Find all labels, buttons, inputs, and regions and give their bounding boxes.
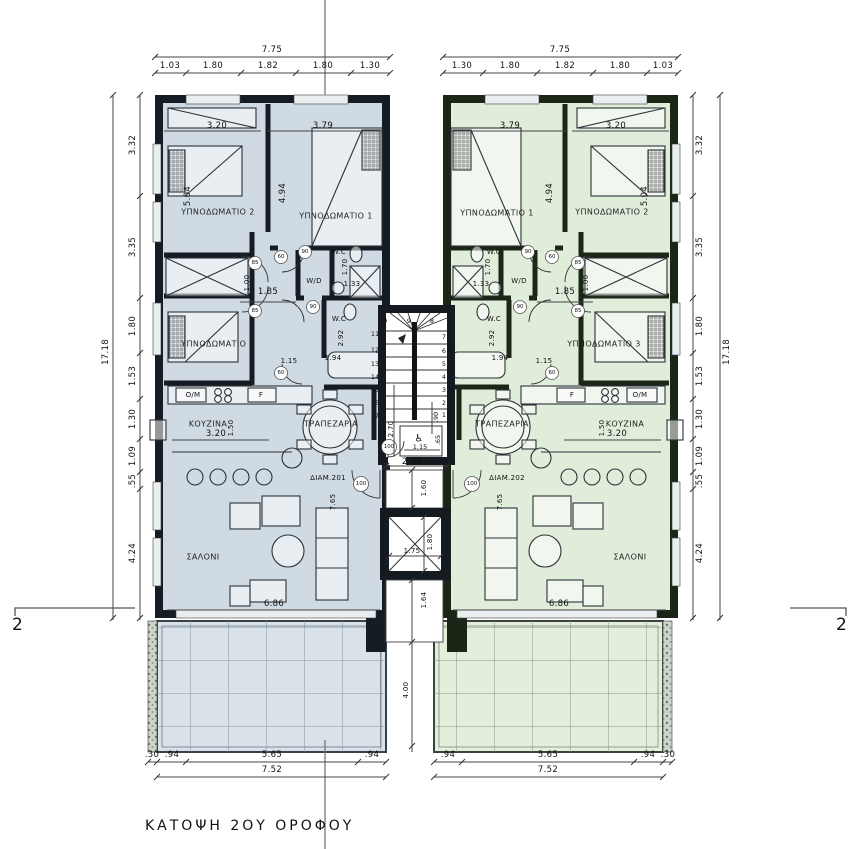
stair-number: 14 bbox=[371, 373, 379, 381]
dim-label: 1.82 bbox=[555, 61, 575, 71]
dim-label: 1.03 bbox=[653, 61, 673, 71]
dim-label: 4.00 bbox=[402, 682, 410, 699]
wall-stub-right bbox=[447, 618, 467, 652]
drawing-title: ΚΑΤΟΨΗ 2ΟΥ ΟΡΟΦΟΥ bbox=[145, 818, 354, 834]
dim-label: 2.92 bbox=[337, 330, 345, 347]
wheelchair-icon: ♿ bbox=[414, 434, 423, 445]
dim-label: 1.53 bbox=[695, 366, 705, 386]
stair-number: 11 bbox=[371, 330, 379, 338]
stair-number: 7 bbox=[442, 333, 446, 341]
room-label-wd: W/D bbox=[306, 277, 322, 285]
dim-label: .94 bbox=[641, 750, 655, 760]
section-marker-right: 2 bbox=[836, 615, 847, 635]
stair-number: 12 bbox=[371, 346, 379, 354]
dim-label: 7.65 bbox=[329, 494, 337, 511]
dim-label: 5.04 bbox=[183, 186, 193, 206]
dim-label: 1.50 bbox=[598, 420, 606, 437]
apartment-id: ΔΙΑΜ.201 bbox=[310, 474, 346, 482]
dim-label: 1.03 bbox=[160, 61, 180, 71]
light-well-top bbox=[386, 470, 443, 508]
room-label-bedroom2: ΥΠΝΟΔΩΜΑΤΙΟ 2 bbox=[575, 208, 649, 217]
room-label-bedroom3: ΥΠΝΟΔΩΜΑΤΙΟ 3 bbox=[567, 340, 641, 349]
door-width-label: 100 bbox=[467, 481, 478, 487]
door-width-label: 85 bbox=[575, 260, 582, 266]
dim-label: 1.30 bbox=[452, 61, 472, 71]
dim-label: .30 bbox=[145, 750, 159, 760]
dim-label: 7.75 bbox=[262, 45, 282, 55]
dim-label: 4.24 bbox=[128, 543, 138, 563]
stair-rail bbox=[412, 322, 417, 420]
dim-label: 1.80 bbox=[313, 61, 333, 71]
dim-label: 1.60 bbox=[420, 480, 428, 497]
dim-label: 1.00 bbox=[243, 275, 251, 292]
door-width-label: 85 bbox=[252, 260, 259, 266]
dim-label: 17.18 bbox=[722, 339, 732, 365]
dim-label: 4.94 bbox=[278, 183, 288, 203]
dim-label: 3.35 bbox=[695, 237, 705, 257]
floor-plan: 7.75 7.75 1.03 1.80 1.82 1.80 1.30 1.30 … bbox=[0, 0, 861, 849]
appliance-label-f: F bbox=[570, 391, 574, 399]
dim-label: 1.30 bbox=[128, 409, 138, 429]
dim-label: 1.33 bbox=[473, 280, 490, 288]
stair-number: 9 bbox=[407, 317, 411, 325]
stair-number: 8 bbox=[430, 317, 434, 325]
room-label-living: ΣΑΛΟΝΙ bbox=[613, 553, 646, 562]
door-width-label: 60 bbox=[549, 370, 556, 376]
section-marker-left: 2 bbox=[12, 615, 23, 635]
dim-label: 1.85 bbox=[555, 287, 575, 297]
appliance-label-om: O/M bbox=[186, 391, 201, 399]
dim-label: 7.65 bbox=[496, 494, 504, 511]
dim-label: 7.52 bbox=[262, 765, 282, 775]
stair-number: 6 bbox=[442, 347, 446, 355]
room-label-kitchen: ΚΟΥΖΙΝΑ bbox=[606, 420, 645, 429]
stair-number: 5 bbox=[442, 360, 446, 368]
door-width-label: 60 bbox=[278, 370, 285, 376]
room-label-wc: W.C bbox=[332, 248, 346, 256]
dim-label: 1.64 bbox=[420, 592, 428, 609]
dim-label: 1.33 bbox=[344, 280, 361, 288]
door-width-label: 90 bbox=[517, 304, 524, 310]
door-width-label: 100 bbox=[356, 481, 367, 487]
dim-label: 2.50 bbox=[402, 457, 422, 467]
room-label-kitchen: ΚΟΥΖΙΝΑ bbox=[189, 420, 228, 429]
dim-label: 1.30 bbox=[695, 409, 705, 429]
dim-label: 5.65 bbox=[538, 750, 558, 760]
dim-label: 6.86 bbox=[549, 599, 569, 609]
door-width-label: 90 bbox=[525, 249, 532, 255]
dim-label: 4.94 bbox=[545, 183, 555, 203]
dim-label: 6.86 bbox=[264, 599, 284, 609]
dim-label: 3.20 bbox=[606, 121, 626, 131]
dim-label: 3.79 bbox=[313, 121, 333, 131]
dim-label: 1.80 bbox=[203, 61, 223, 71]
room-label-dining: ΤΡΑΠΕΖΑΡΙΑ bbox=[304, 420, 358, 429]
appliance-label-om: O/M bbox=[633, 391, 648, 399]
dim-label: 1.80 bbox=[500, 61, 520, 71]
dim-label: .94 bbox=[365, 750, 379, 760]
stair-number: 10 bbox=[379, 317, 387, 325]
dim-label: 3.20 bbox=[607, 429, 627, 439]
stair-number: 3 bbox=[442, 386, 446, 394]
room-label-wd: W/D bbox=[511, 277, 527, 285]
dim-label: 17.18 bbox=[101, 339, 111, 365]
door-width-label: 90 bbox=[310, 304, 317, 310]
door-width-label: 85 bbox=[575, 308, 582, 314]
dim-label: 2.92 bbox=[488, 330, 496, 347]
dim-label: 1.50 bbox=[227, 420, 235, 437]
stair-number: 17 bbox=[371, 412, 379, 420]
apartment-id: ΔΙΑΜ.202 bbox=[489, 474, 525, 482]
dim-label: .94 bbox=[165, 750, 179, 760]
dim-label: .90 bbox=[432, 412, 440, 422]
room-label-bedroom3: ΥΠΝΟΔΩΜΑΤΙΟ 3 bbox=[181, 340, 255, 349]
dim-label: 1.53 bbox=[128, 366, 138, 386]
light-well-bottom bbox=[386, 580, 443, 642]
dim-label: 3.35 bbox=[128, 237, 138, 257]
dim-label: 1.15 bbox=[536, 357, 553, 365]
appliance-label-f: F bbox=[259, 391, 263, 399]
door-width-label: 60 bbox=[278, 254, 285, 260]
dim-label: 3.20 bbox=[207, 121, 227, 131]
stair-number: 1 bbox=[442, 411, 446, 419]
dim-label: 3.20 bbox=[206, 429, 226, 439]
stair-number: 16 bbox=[371, 399, 379, 407]
dim-label: 1.30 bbox=[360, 61, 380, 71]
room-label-wc: W.C bbox=[332, 315, 346, 323]
dim-label: 1.09 bbox=[695, 446, 705, 466]
stair-number: 4 bbox=[442, 373, 446, 381]
stair-number: 15 bbox=[371, 386, 379, 394]
dim-label: 3.32 bbox=[128, 135, 138, 155]
dim-label: 1.80 bbox=[610, 61, 630, 71]
dim-label: 5.04 bbox=[640, 186, 650, 206]
dim-label: 1.15 bbox=[281, 357, 298, 365]
dim-label: 1.70 bbox=[341, 259, 349, 276]
dim-label: 1.80 bbox=[426, 534, 434, 551]
dim-label: 3.79 bbox=[500, 121, 520, 131]
dim-label: 1.80 bbox=[128, 316, 138, 336]
dim-label: 1.09 bbox=[128, 446, 138, 466]
dim-label: .65 bbox=[434, 435, 442, 445]
right-balcony bbox=[434, 621, 672, 752]
dim-label: 5.65 bbox=[262, 750, 282, 760]
dim-label: 1.85 bbox=[258, 287, 278, 297]
left-balcony bbox=[148, 621, 386, 752]
wall-stub-left bbox=[366, 618, 386, 652]
dim-label: .94 bbox=[441, 750, 455, 760]
door-width-label: 60 bbox=[549, 254, 556, 260]
room-label-bedroom1: ΥΠΝΟΔΩΜΑΤΙΟ 1 bbox=[460, 209, 534, 218]
stair-number: 2 bbox=[442, 399, 446, 407]
dim-label: 1.75 bbox=[404, 547, 421, 555]
dim-label: 1.00 bbox=[582, 275, 590, 292]
dim-label: .30 bbox=[661, 750, 675, 760]
dim-label: 4.24 bbox=[695, 543, 705, 563]
dim-label: .55 bbox=[128, 474, 138, 488]
dim-label: 1.80 bbox=[695, 316, 705, 336]
dim-label: 1.94 bbox=[325, 354, 342, 362]
dim-label: 2.70 bbox=[387, 421, 395, 438]
door-width-label: 90 bbox=[302, 249, 309, 255]
room-label-dining: ΤΡΑΠΕΖΑΡΙΑ bbox=[475, 420, 529, 429]
dim-label: 7.75 bbox=[550, 45, 570, 55]
door-width-label: 85 bbox=[252, 308, 259, 314]
room-label-wc: W.C bbox=[487, 315, 501, 323]
room-label-wc: W.C bbox=[487, 248, 501, 256]
dim-label: 7.52 bbox=[538, 765, 558, 775]
door-width-label: 100 bbox=[384, 444, 395, 450]
room-label-living: ΣΑΛΟΝΙ bbox=[186, 553, 219, 562]
stair-number: 13 bbox=[371, 360, 379, 368]
room-label-bedroom1: ΥΠΝΟΔΩΜΑΤΙΟ 1 bbox=[299, 212, 373, 221]
dim-label: 1.94 bbox=[492, 354, 509, 362]
dim-label: 3.32 bbox=[695, 135, 705, 155]
dim-label: 1.70 bbox=[484, 259, 492, 276]
room-label-bedroom2: ΥΠΝΟΔΩΜΑΤΙΟ 2 bbox=[181, 208, 255, 217]
dim-label: .55 bbox=[695, 474, 705, 488]
dim-label: 1.82 bbox=[258, 61, 278, 71]
